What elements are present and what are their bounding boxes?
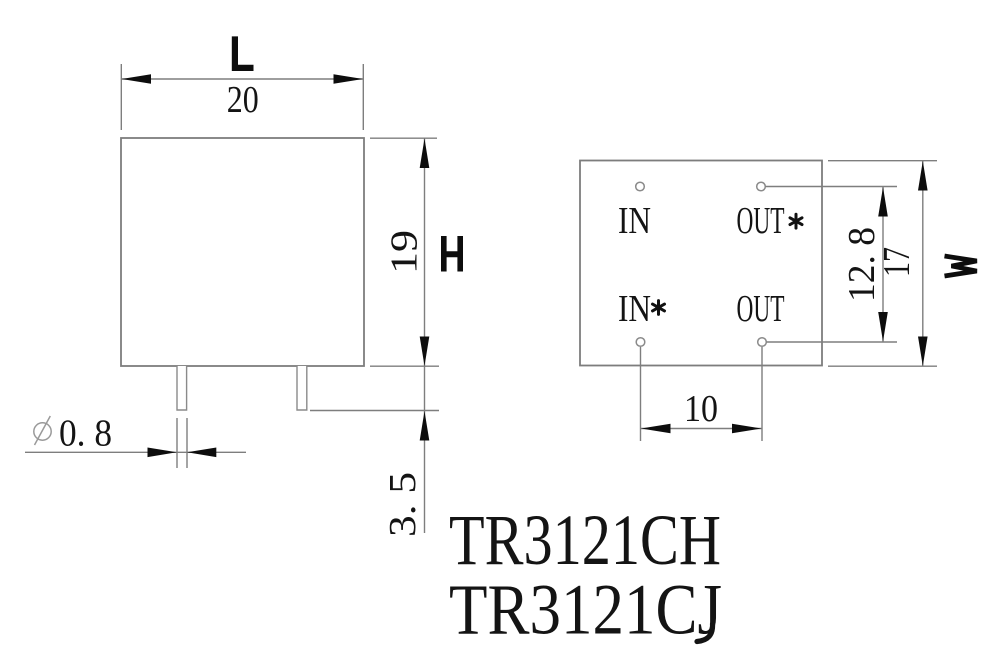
svg-text:20: 20	[227, 79, 259, 121]
svg-text:17: 17	[876, 247, 918, 277]
svg-text:IN: IN	[618, 288, 651, 330]
svg-text:OUT: OUT	[737, 288, 785, 330]
svg-text:10: 10	[684, 388, 718, 430]
svg-text:OUT: OUT	[737, 200, 785, 242]
svg-text:0. 8: 0. 8	[59, 413, 112, 455]
svg-text:3. 5: 3. 5	[382, 472, 424, 537]
svg-text:19: 19	[384, 230, 426, 274]
svg-text:TR3121CJ: TR3121CJ	[449, 569, 722, 650]
svg-text:IN: IN	[618, 200, 651, 242]
